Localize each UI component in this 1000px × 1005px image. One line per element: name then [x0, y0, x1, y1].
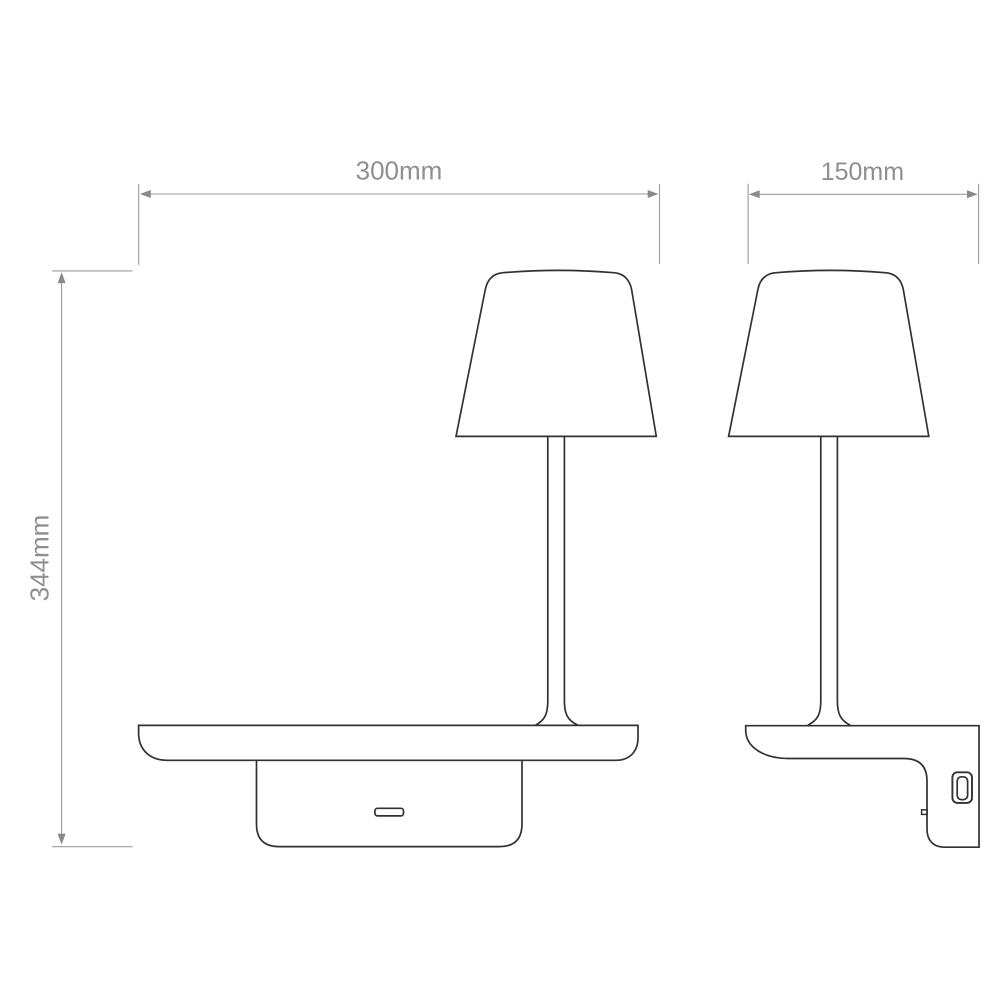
svg-text:150mm: 150mm — [821, 158, 904, 186]
svg-text:344mm: 344mm — [24, 515, 54, 602]
svg-text:300mm: 300mm — [356, 156, 443, 186]
